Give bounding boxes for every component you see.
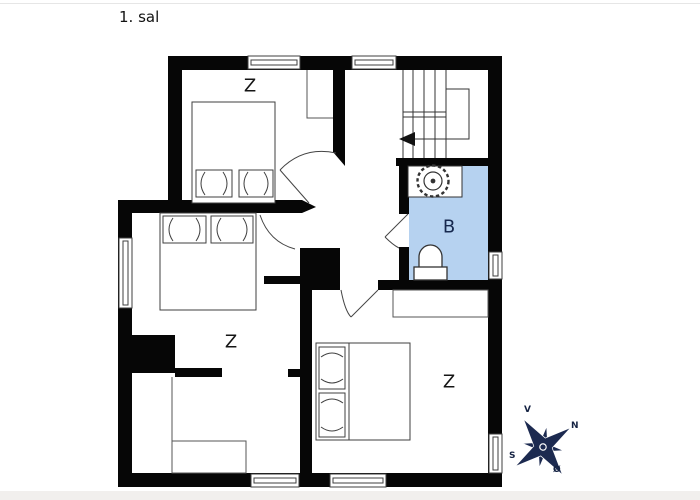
- page-bottom-band: [0, 491, 700, 500]
- stairs-walkline: [415, 89, 469, 139]
- wall-bathroom-bottom: [378, 280, 488, 290]
- door-arc-bathroom: [385, 214, 408, 248]
- wall-bottom: [118, 473, 502, 487]
- closet-outline: [307, 70, 333, 118]
- room-label-bedroom-top: Z: [244, 76, 256, 97]
- compass-label-north: N: [571, 421, 579, 431]
- wall-stub: [288, 369, 300, 377]
- floor-plan-page: 1. sal Z Z Z B V N S Ø: [0, 0, 700, 500]
- chimney-block: [132, 335, 175, 373]
- door-arc-top-bedroom: [280, 151, 336, 203]
- compass-label-east: Ø: [553, 465, 561, 475]
- compass-rose-icon: [496, 400, 591, 495]
- pillow: [319, 393, 345, 437]
- window: [248, 56, 300, 69]
- wall-hall-arm: [264, 276, 300, 284]
- wall-bathroom-top: [396, 158, 488, 166]
- wall-nook: [175, 368, 222, 377]
- wall-left-upper: [168, 56, 182, 213]
- desk: [172, 441, 246, 473]
- window: [489, 434, 502, 473]
- door-arc-left-bedroom: [260, 215, 295, 249]
- window: [352, 56, 396, 69]
- room-label-bedroom-bottom-right: Z: [443, 372, 455, 393]
- staircase: [399, 70, 469, 158]
- wall-miter-end: [333, 152, 345, 166]
- room-label-bedroom-left: Z: [225, 332, 237, 353]
- door-arc-bottom-right-bedroom: [341, 290, 378, 317]
- bed-bottom-right-bedroom: [316, 343, 410, 440]
- window: [489, 252, 502, 279]
- wall-hall-block: [300, 248, 340, 284]
- wall-stair-hall: [333, 56, 345, 152]
- doors: [260, 151, 408, 317]
- window: [119, 238, 132, 308]
- window: [251, 474, 299, 487]
- room-label-bathroom: B: [443, 217, 455, 238]
- wardrobe: [393, 290, 488, 317]
- floor-plan-canvas: [0, 0, 700, 500]
- wall-miter-end: [302, 200, 316, 213]
- page-title: 1. sal: [119, 8, 159, 26]
- window: [330, 474, 386, 487]
- compass-label-west: V: [524, 405, 531, 415]
- stairs-direction-arrow-icon: [399, 132, 415, 146]
- wall-vertical-divider: [300, 282, 312, 473]
- bed-top-bedroom: [192, 102, 275, 203]
- bed-left-bedroom: [160, 213, 256, 310]
- compass-label-south: S: [509, 451, 515, 461]
